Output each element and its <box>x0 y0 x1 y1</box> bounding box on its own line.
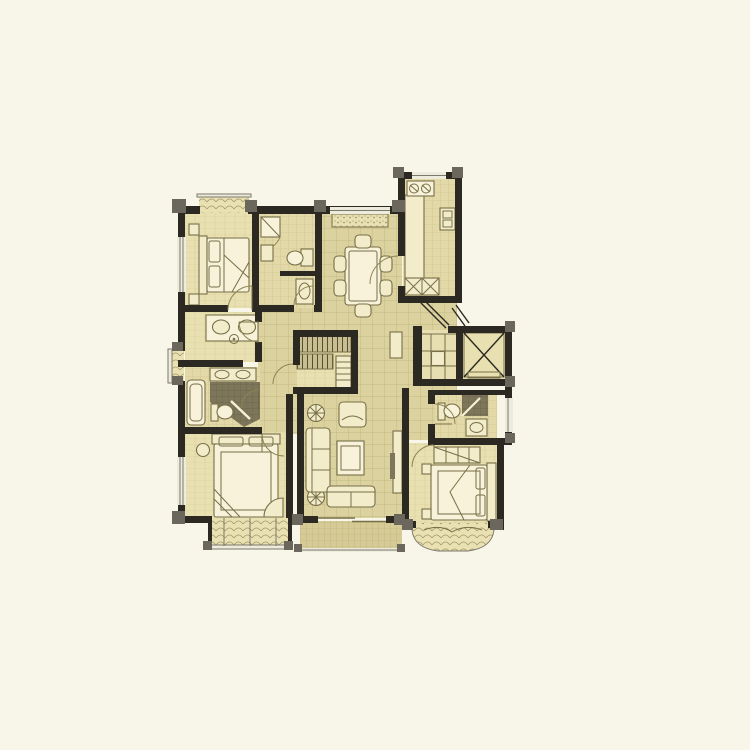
sofa-icon <box>306 428 330 492</box>
desk-icon <box>206 315 258 344</box>
step-shelf-icon <box>336 356 351 388</box>
chair-icon <box>334 280 346 296</box>
bay-window-bottom-right-bedroom <box>412 523 494 551</box>
kitchen-counter <box>405 195 424 279</box>
flower-box-window-dining <box>332 214 388 227</box>
vanity-icon <box>296 279 313 304</box>
elevator-icon <box>464 333 504 378</box>
base-cabinet-icon <box>405 278 439 295</box>
window-bathroom-right <box>505 398 513 432</box>
balcony-rail <box>297 548 405 552</box>
chair-icon <box>355 235 371 248</box>
nightstand-icon <box>422 464 431 474</box>
room-study <box>206 315 258 344</box>
window-dining-top <box>330 207 390 214</box>
chair-icon <box>355 304 371 317</box>
floor-plan-page <box>0 0 750 750</box>
stove-icon <box>407 181 434 196</box>
floor-plan-drawing <box>0 0 750 750</box>
loveseat-icon <box>327 486 375 507</box>
wardrobe-icon <box>297 354 333 369</box>
bed-icon <box>431 463 496 521</box>
window-kitchen-top <box>412 172 446 179</box>
nightstand-icon <box>422 509 431 519</box>
nightstand-icon <box>197 444 210 457</box>
armchair-icon <box>339 402 366 427</box>
bay-window-master-bedroom <box>208 518 292 549</box>
coffee-table-icon <box>337 441 364 475</box>
chair-icon <box>334 256 346 272</box>
shower-icon <box>462 394 488 416</box>
cabinet-icon <box>390 332 402 358</box>
chair-icon <box>213 320 230 334</box>
balcony-sliding-door <box>318 518 386 522</box>
bay-window-top-bedroom <box>197 194 251 213</box>
bed-icon <box>199 236 249 294</box>
nightstand-icon <box>189 294 199 305</box>
vanity-icon <box>210 368 256 381</box>
wardrobe-icon <box>297 336 351 352</box>
tv-icon <box>390 453 395 479</box>
window-bedroom-left <box>177 237 186 292</box>
window-master-bedroom-left <box>177 457 186 505</box>
chair-icon <box>380 280 392 296</box>
washer-icon <box>261 245 273 261</box>
nightstand-icon <box>189 224 199 235</box>
plant-icon <box>308 405 325 422</box>
bathtub-icon <box>187 380 205 425</box>
vanity-icon <box>466 419 487 436</box>
kitchen-sink-icon <box>440 208 455 230</box>
wardrobe-icon <box>434 447 480 463</box>
balcony-floor <box>300 521 402 550</box>
